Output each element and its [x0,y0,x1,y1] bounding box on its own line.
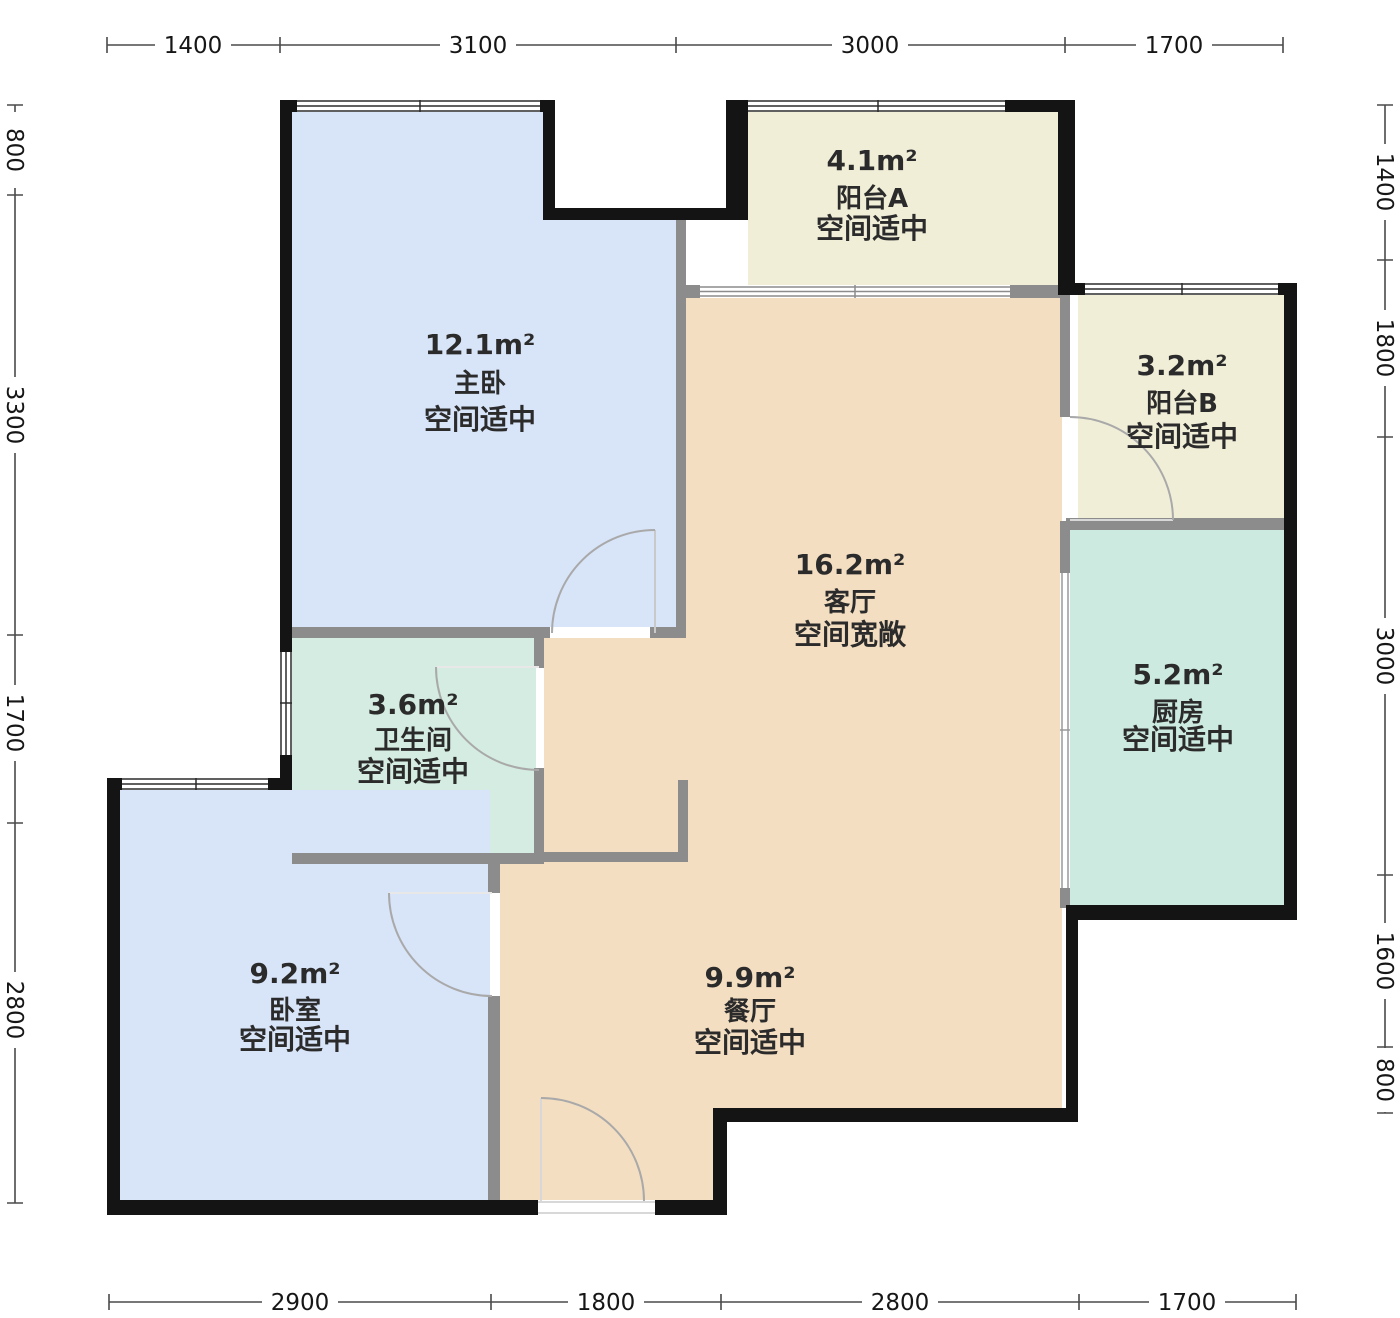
floorplan-page: 1400 3100 3000 1700 2900 1800 2800 1700 … [0,0,1400,1318]
room-area: 3.6m² [367,688,458,721]
dim-right-5: 800 [1371,1058,1397,1102]
room-note: 空间宽敞 [794,618,907,651]
wall-master-left [280,100,292,652]
room-note: 空间适中 [1126,420,1238,453]
room-name: 客厅 [824,587,876,618]
room-note: 空间适中 [424,403,536,436]
wall-bedroom-right-lower [488,996,500,1208]
wall-bedroom-right-upper [488,860,500,893]
wall-bathroom-right-lower [534,768,544,864]
room-area: 9.9m² [704,961,795,994]
dim-right-4: 1600 [1371,932,1397,991]
dim-left-2: 3300 [1,386,27,445]
floorplan-canvas: 1400 3100 3000 1700 2900 1800 2800 1700 … [0,0,1400,1318]
room-area: 4.1m² [826,144,917,177]
dim-top-4: 1700 [1145,33,1204,59]
room-area: 16.2m² [795,548,906,581]
wall-bottom-step [713,1108,727,1215]
wall-bedroom-left [107,778,120,1215]
dim-top-3: 3000 [841,33,900,59]
window-balcony-b [1085,283,1278,295]
dim-right-1: 1400 [1371,153,1397,212]
wall-balcony-a-right [1058,100,1075,295]
wall-bathroom-bottom [292,853,544,864]
dim-bottom-3: 2800 [871,1290,930,1316]
dim-left-1: 800 [1,128,27,172]
room-note: 空间适中 [239,1023,351,1056]
room-name: 卫生间 [374,726,452,756]
room-area: 9.2m² [249,957,340,990]
room-note: 空间适中 [357,755,469,788]
slider-living-balcony-a [700,285,1010,298]
room-note: 空间适中 [694,1026,806,1059]
dim-right-2: 1800 [1371,319,1397,378]
wall-step-vertical [543,100,555,220]
dim-left-3: 1700 [1,694,27,753]
wall-bathroom-right-upper [534,638,544,668]
entrance-opening [538,1200,655,1215]
room-name: 主卧 [454,369,506,399]
wall-step-horizontal [543,208,748,220]
wall-right-outer [1284,283,1297,920]
dim-line-top [107,37,1283,53]
dim-top-1: 1400 [164,33,223,59]
dim-right-3: 3000 [1371,627,1397,686]
dim-bottom-4: 1700 [1158,1290,1217,1316]
room-area: 3.2m² [1136,349,1227,382]
wall-master-bottom-left [288,627,550,638]
wall-dining-living-stub-h [544,852,688,862]
wall-living-right-upper [1060,290,1070,417]
room-name: 阳台A [836,183,908,214]
wall-kitchen-bottom [1066,905,1297,920]
room-name: 卧室 [269,995,321,1026]
dim-left-4: 2800 [1,981,27,1040]
room-note: 空间适中 [816,212,928,245]
wall-balcony-a-left [726,100,748,220]
window-master-bedroom [297,100,540,112]
room-name: 阳台B [1146,388,1218,419]
room-area: 12.1m² [425,328,536,361]
slider-kitchen [1060,573,1070,888]
wall-living-left [676,216,686,638]
wall-dining-bottom-right [715,1108,1078,1122]
window-bedroom [122,778,268,790]
room-name: 餐厅 [724,997,776,1027]
room-note: 空间适中 [1122,723,1234,756]
wall-dining-right [1066,905,1078,1122]
dim-bottom-1: 2900 [271,1290,330,1316]
wall-dining-living-stub-v [678,780,688,862]
window-bathroom [280,652,292,755]
window-balcony-a [748,100,1005,112]
dim-top-2: 3100 [449,33,508,59]
room-area: 5.2m² [1132,658,1223,691]
dim-bottom-2: 1800 [577,1290,636,1316]
